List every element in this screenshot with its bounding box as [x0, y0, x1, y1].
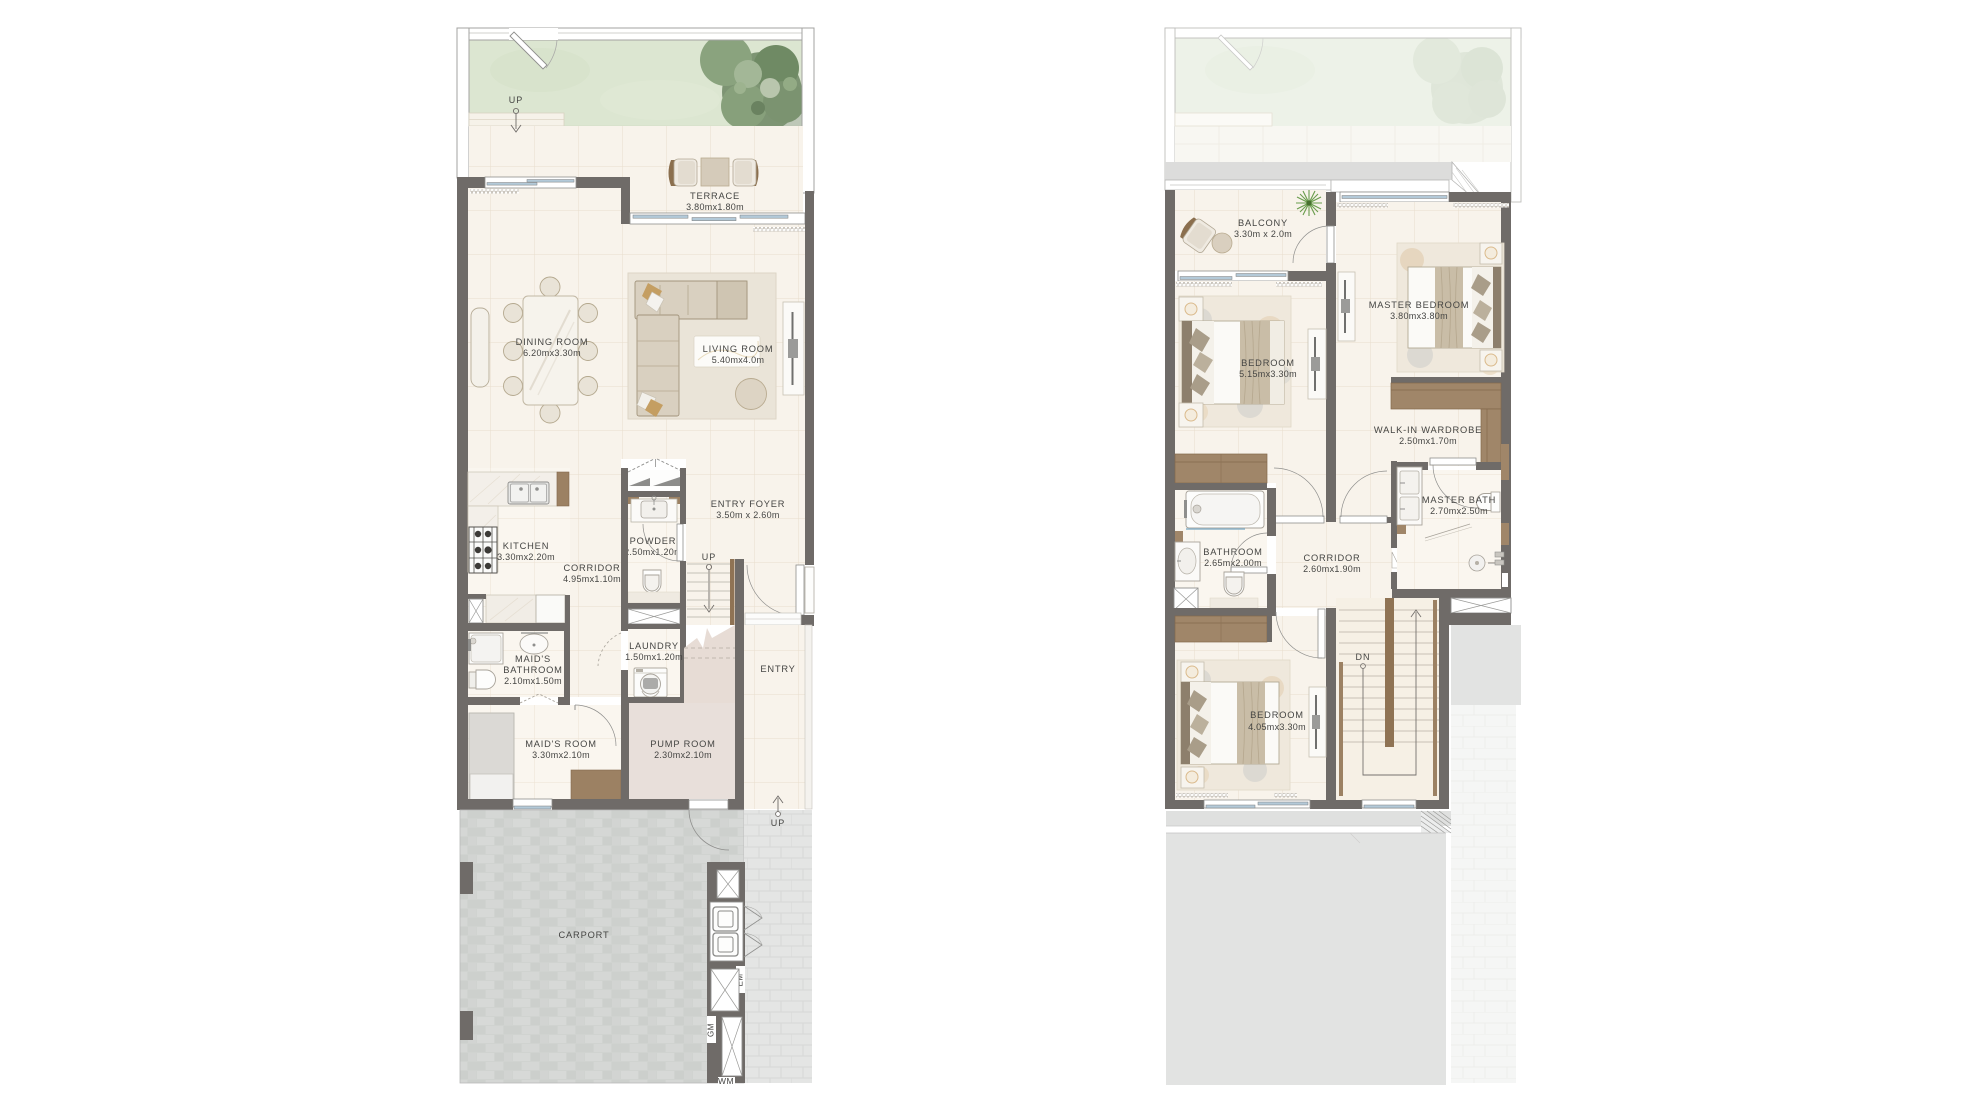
svg-text:MAID'S: MAID'S — [515, 654, 551, 664]
svg-text:WM: WM — [718, 1076, 734, 1086]
svg-text:GM: GM — [707, 1023, 716, 1037]
svg-text:MASTER BEDROOM: MASTER BEDROOM — [1369, 300, 1470, 310]
svg-text:3.80mx1.80m: 3.80mx1.80m — [686, 202, 744, 212]
svg-text:CARPORT: CARPORT — [559, 930, 610, 940]
svg-text:2.65mx2.00m: 2.65mx2.00m — [1204, 558, 1262, 568]
svg-text:3.80mx3.80m: 3.80mx3.80m — [1390, 311, 1448, 321]
svg-text:PUMP ROOM: PUMP ROOM — [650, 739, 715, 749]
svg-text:WALK-IN WARDROBE: WALK-IN WARDROBE — [1374, 425, 1482, 435]
svg-text:2.60mx1.90m: 2.60mx1.90m — [1303, 564, 1361, 574]
svg-text:4.05mx3.30m: 4.05mx3.30m — [1248, 722, 1306, 732]
svg-text:2.50mx1.20m: 2.50mx1.20m — [624, 547, 682, 557]
svg-text:MAID'S ROOM: MAID'S ROOM — [525, 739, 597, 749]
svg-text:3.30mx2.10m: 3.30mx2.10m — [532, 750, 590, 760]
svg-text:UP: UP — [509, 95, 524, 105]
svg-text:2.10mx1.50m: 2.10mx1.50m — [504, 676, 562, 686]
svg-text:UP: UP — [771, 818, 786, 828]
svg-text:LAUNDRY: LAUNDRY — [629, 641, 679, 651]
svg-text:5.15mx3.30m: 5.15mx3.30m — [1239, 369, 1297, 379]
svg-text:4.95mx1.10m: 4.95mx1.10m — [563, 574, 621, 584]
svg-text:ENTRY: ENTRY — [760, 664, 795, 674]
svg-text:BATHROOM: BATHROOM — [503, 665, 562, 675]
svg-text:3.50m x 2.60m: 3.50m x 2.60m — [716, 510, 779, 520]
svg-text:BALCONY: BALCONY — [1238, 218, 1288, 228]
svg-text:ENTRY FOYER: ENTRY FOYER — [711, 499, 786, 509]
svg-text:DN: DN — [1356, 652, 1371, 662]
svg-text:2.30mx2.10m: 2.30mx2.10m — [654, 750, 712, 760]
svg-text:POWDER: POWDER — [630, 536, 677, 546]
svg-text:2.70mx2.50m: 2.70mx2.50m — [1430, 506, 1488, 516]
svg-text:LIVING ROOM: LIVING ROOM — [703, 344, 774, 354]
svg-text:2.50mx1.70m: 2.50mx1.70m — [1399, 436, 1457, 446]
svg-text:6.20mx3.30m: 6.20mx3.30m — [523, 348, 581, 358]
svg-text:KITCHEN: KITCHEN — [503, 541, 549, 551]
svg-text:BEDROOM: BEDROOM — [1241, 358, 1295, 368]
svg-text:MASTER BATH: MASTER BATH — [1422, 495, 1496, 505]
svg-text:UP: UP — [702, 552, 717, 562]
svg-text:TERRACE: TERRACE — [690, 191, 740, 201]
svg-text:CORRIDOR: CORRIDOR — [1303, 553, 1360, 563]
svg-text:BEDROOM: BEDROOM — [1250, 710, 1304, 720]
svg-text:3.30mx2.20m: 3.30mx2.20m — [497, 552, 555, 562]
svg-text:CORRIDOR: CORRIDOR — [563, 563, 620, 573]
svg-text:3.30m x 2.0m: 3.30m x 2.0m — [1234, 229, 1292, 239]
svg-text:BATHROOM: BATHROOM — [1203, 547, 1262, 557]
svg-text:1.50mx1.20m: 1.50mx1.20m — [625, 652, 683, 662]
svg-text:DINING ROOM: DINING ROOM — [516, 337, 589, 347]
svg-text:5.40mx4.0m: 5.40mx4.0m — [712, 355, 765, 365]
